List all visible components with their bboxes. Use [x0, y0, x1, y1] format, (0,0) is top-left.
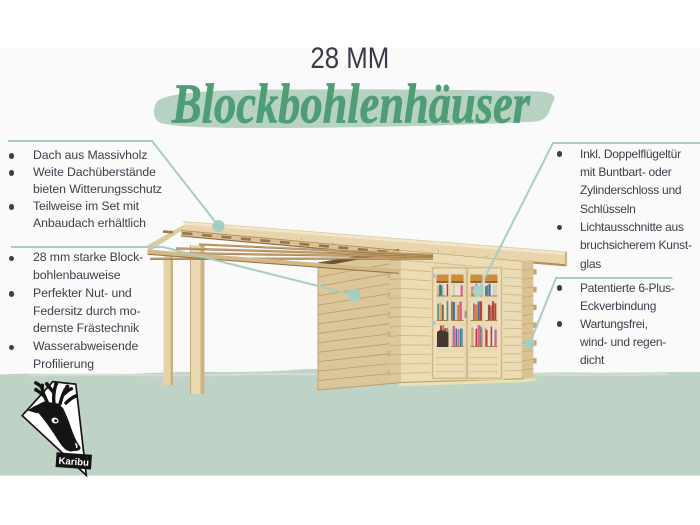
svg-text:Karibu: Karibu [58, 456, 89, 469]
svg-text:Blockbohlenhäuser: Blockbohlenhäuser [171, 75, 531, 135]
